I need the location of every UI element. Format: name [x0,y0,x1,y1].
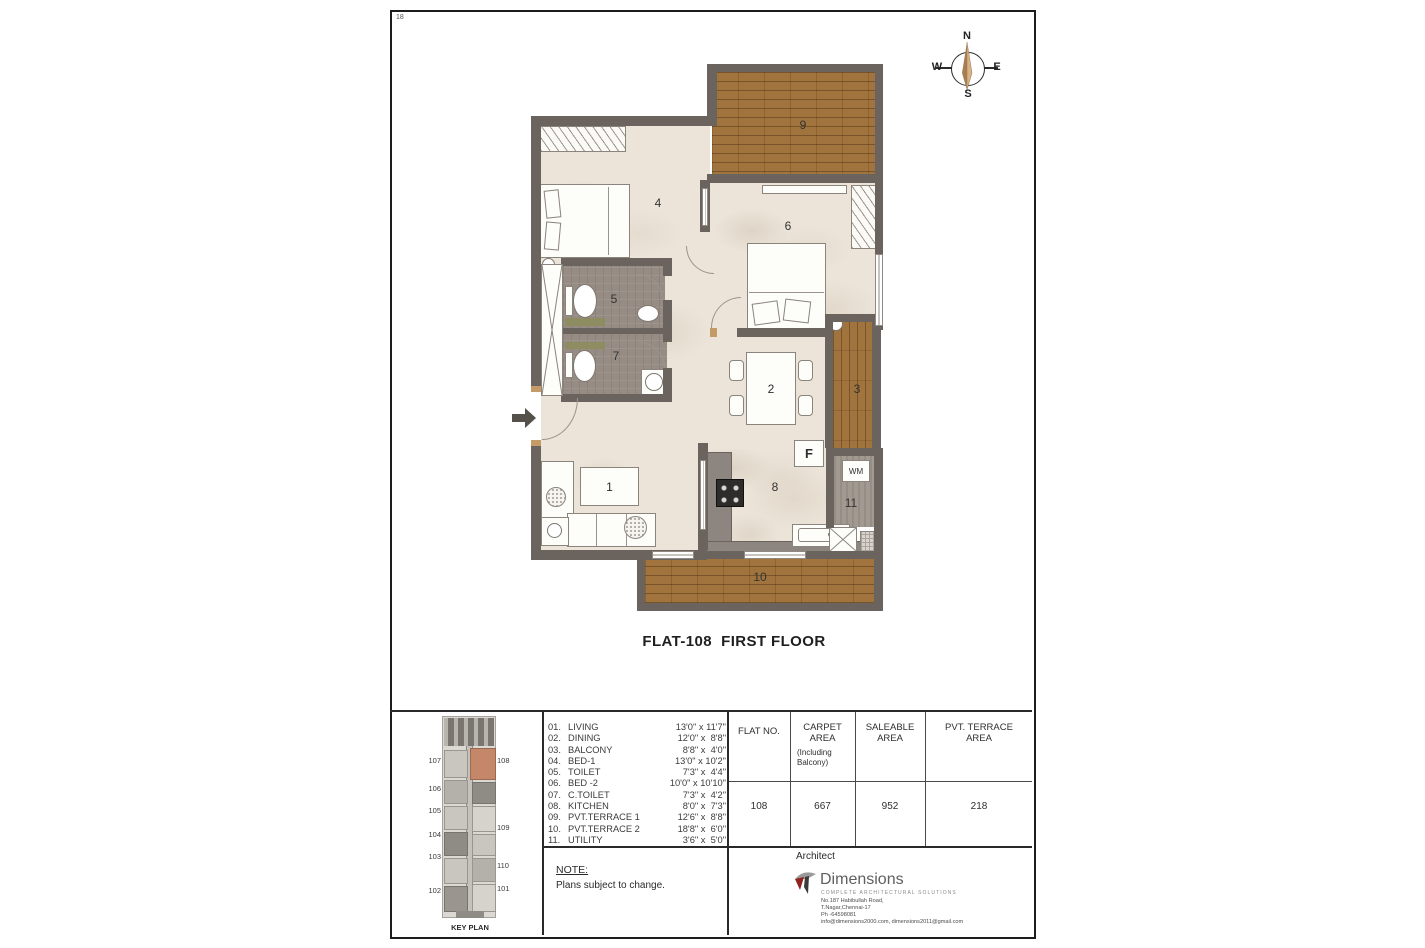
table-header-flat-no: FLAT NO. [729,726,789,737]
note-title: NOTE: [556,864,588,876]
room-label-bed2: 6 [780,219,796,233]
side-table-circle [547,523,562,538]
table-cell-pvt-terrace-area: 218 [926,801,1032,812]
table-column-line [925,712,926,846]
wall-segment [707,64,717,126]
utility-shaft-box [829,527,857,552]
table-cell-saleable-area: 952 [856,801,924,812]
x-mark-icon [830,528,856,551]
table-header-carpet-area: CARPET AREA [791,722,854,744]
living-center-table: 1 [580,467,639,506]
key-plan-unit-block [444,718,494,746]
key-plan-unit-105: 105 [424,806,441,815]
room-label-ctoilet: 7 [608,349,624,363]
wall-segment [737,328,833,337]
key-plan-unit-block [472,806,496,832]
architect-tagline: COMPLETE ARCHITECTURAL SOLUTIONS [821,890,957,896]
living-sofa-cushion [624,516,647,539]
key-plan-unit-block [472,858,496,882]
key-plan-unit-block [456,911,484,918]
bed2-bed-foldline [749,292,824,293]
legend-row: 10.PVT.TERRACE 218'8" x 6'0" [548,824,726,835]
door-jamb [531,440,541,446]
key-plan-unit-103: 103 [424,852,441,861]
room-label-toilet: 5 [606,292,622,306]
legend-row: 04.BED-113'0" x 10'2" [548,756,726,767]
washing-machine: WM [842,460,870,482]
key-plan-unit-block [444,750,468,778]
sheet-number: 18 [396,14,404,21]
legend-row: 01.LIVING13'0" x 11'7" [548,722,726,733]
compass-needle-icon [958,42,976,92]
room-label-dining: 2 [768,382,775,396]
wall-segment [875,64,883,183]
bed2-shelf [762,185,847,194]
stove-hob [716,479,744,507]
duct-shaft [541,264,563,396]
bed2-window [875,254,883,326]
toilet-cistern [565,286,573,316]
wall-segment [531,116,717,126]
key-plan-unit-101: 101 [497,884,510,893]
room-label-terrace2: 10 [748,570,772,584]
x-mark-icon [542,265,562,395]
key-plan-unit-block [472,782,496,804]
legend-row: 05.TOILET7'3" x 4'4" [548,767,726,778]
dining-chair [729,360,744,381]
wall-segment [637,603,883,611]
architect-email: info@dimensions2000.com, dimensions2011@… [821,919,963,925]
architect-address-line2: T.Nagar,Chennai-17 [821,905,871,911]
wall-segment [826,448,882,456]
bed2-pillow [752,300,781,325]
note-text: Plans subject to change. [556,880,665,891]
kitchen-window [700,460,706,530]
key-plan-unit-block [472,834,496,856]
table-header-line [729,781,1032,782]
room-label-bed1: 4 [650,196,666,210]
plan-title: FLAT-108 FIRST FLOOR [584,633,884,650]
living-window [652,551,694,559]
table-header-carpet-sub: (Including Balcony) [797,748,852,767]
room-label-balcony: 3 [849,382,865,396]
room-label-living: 1 [606,480,613,494]
wall-segment [663,300,672,342]
floor-plan-sheet-page: { "sheet": { "number": "18" }, "compass"… [0,0,1425,948]
key-plan-unit-block [444,832,468,856]
door-jamb [710,328,717,337]
key-plan-highlighted-unit-108 [470,748,496,780]
key-plan-unit-109: 109 [497,823,510,832]
legend-row: 03.BALCONY8'8" x 4'0" [548,745,726,756]
key-plan-unit-block [444,780,468,804]
room-label-utility: 11 [841,496,861,510]
toilet-ledge [565,318,605,326]
key-plan-unit-104: 104 [424,830,441,839]
entry-arrow-icon [525,408,536,428]
wall-segment [531,116,541,560]
toilet-washbasin [637,305,659,322]
legend-row: 06.BED -210'0" x 10'10" [548,778,726,789]
key-plan-unit-108: 108 [497,756,510,765]
kitchen-sliding-door [744,551,806,559]
compass-east-label: E [990,61,1004,73]
key-plan-unit-107: 107 [424,756,441,765]
architect-firm-name: Dimensions [820,871,904,889]
wall-segment [561,258,669,266]
bed2-wardrobe [851,185,876,249]
compass-west-label: W [930,61,944,73]
architect-phone: Ph -64598081 [821,912,856,918]
compass-north-label: N [960,30,974,42]
wall-segment [707,64,883,72]
room-label-terrace1: 9 [795,118,811,132]
key-plan-unit-block [472,884,496,912]
wall-segment [825,322,833,448]
architect-label: Architect [796,851,835,862]
key-plan-unit-110: 110 [497,861,509,870]
key-plan-unit-106: 106 [424,784,441,793]
wall-segment [826,456,834,528]
wall-segment [561,328,665,334]
bed1-pillow [544,189,562,218]
titleblock-divider [390,710,1032,712]
wall-segment [874,448,883,611]
ctoilet-ledge [565,342,605,349]
ctoilet-washbasin [645,373,663,391]
dimensions-logo-icon [793,868,818,895]
legend-row: 09.PVT.TERRACE 112'6" x 8'8" [548,812,726,823]
compass-south-label: S [961,88,975,100]
toilet-wc [573,284,597,318]
terrace1-floor [712,72,875,176]
table-header-pvt-terrace-area: PVT. TERRACE AREA [936,722,1022,744]
legend-row: 11.UTILITY3'6" x 5'0" [548,835,726,846]
wall-segment [663,258,672,276]
dining-chair [729,395,744,416]
key-plan-unit-102: 102 [424,886,441,895]
bed1-pillow [544,221,561,250]
key-plan-unit-block [444,858,468,884]
bed1-wardrobe [540,126,626,152]
dining-chair [798,395,813,416]
bed1-bed-foldline [608,187,609,255]
ctoilet-wc [573,350,596,382]
fridge: F [794,440,824,467]
table-cell-carpet-area: 667 [791,801,854,812]
door-jamb [531,386,541,392]
washing-machine-label: WM [849,467,863,476]
room-label-kitchen: 8 [767,480,783,494]
dining-table: 2 [746,352,796,425]
titleblock-divider [727,710,729,935]
passage-window [702,188,708,226]
key-plan-unit-block [444,806,468,830]
dining-chair [798,360,813,381]
wall-segment [872,320,881,448]
legend-row: 07.C.TOILET7'3" x 4'2" [548,790,726,801]
wall-segment [637,551,645,611]
titleblock-divider [542,710,544,935]
room-legend: 01.LIVING13'0" x 11'7" 02.DINING12'0" x … [548,722,726,846]
wall-segment [707,174,883,183]
architect-address-line1: No.187 Habibullah Road, [821,898,884,904]
fridge-label: F [805,446,813,461]
bed2-pillow [783,298,811,323]
sofa-seat-divider [596,514,597,546]
key-plan-unit-block [444,886,468,912]
table-header-saleable-area: SALEABLE AREA [858,722,922,744]
living-sofa-cushion [546,487,566,507]
key-plan-label: KEY PLAN [430,923,510,932]
ctoilet-cistern [565,352,573,378]
legend-row: 02.DINING12'0" x 8'8" [548,733,726,744]
table-cell-flat-no: 108 [729,801,789,812]
titleblock-divider [542,846,1032,848]
legend-row: 08.KITCHEN8'0" x 7'3" [548,801,726,812]
entry-arrow-stem [512,414,525,422]
table-column-line [855,712,856,846]
